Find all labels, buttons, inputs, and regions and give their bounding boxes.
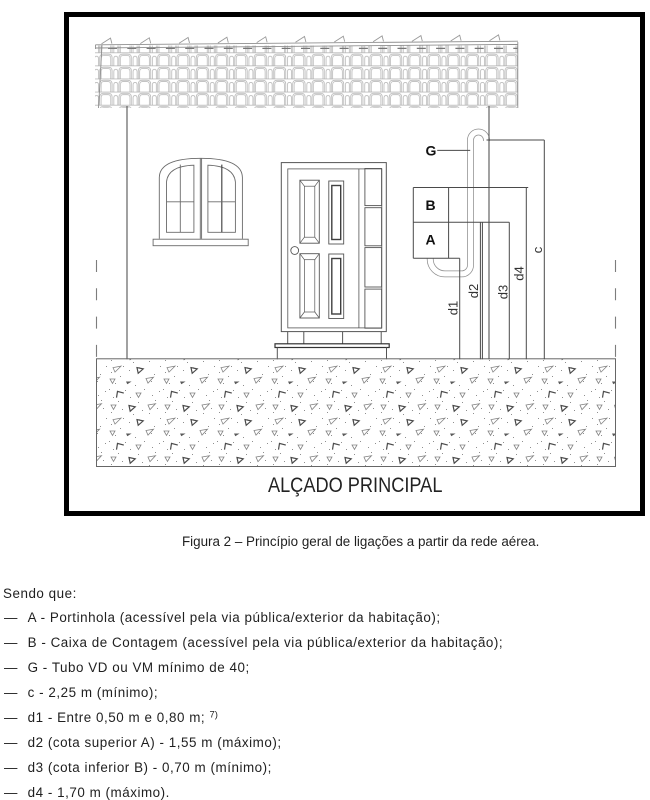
svg-text:d3: d3	[496, 285, 511, 299]
svg-text:d4: d4	[512, 266, 527, 280]
svg-text:d1: d1	[446, 301, 461, 315]
svg-text:G: G	[426, 142, 437, 158]
svg-text:B: B	[425, 197, 435, 213]
svg-text:ALÇADO PRINCIPAL: ALÇADO PRINCIPAL	[268, 473, 443, 497]
svg-text:A: A	[425, 231, 435, 247]
svg-text:d2: d2	[466, 284, 481, 298]
svg-text:c: c	[530, 246, 545, 253]
